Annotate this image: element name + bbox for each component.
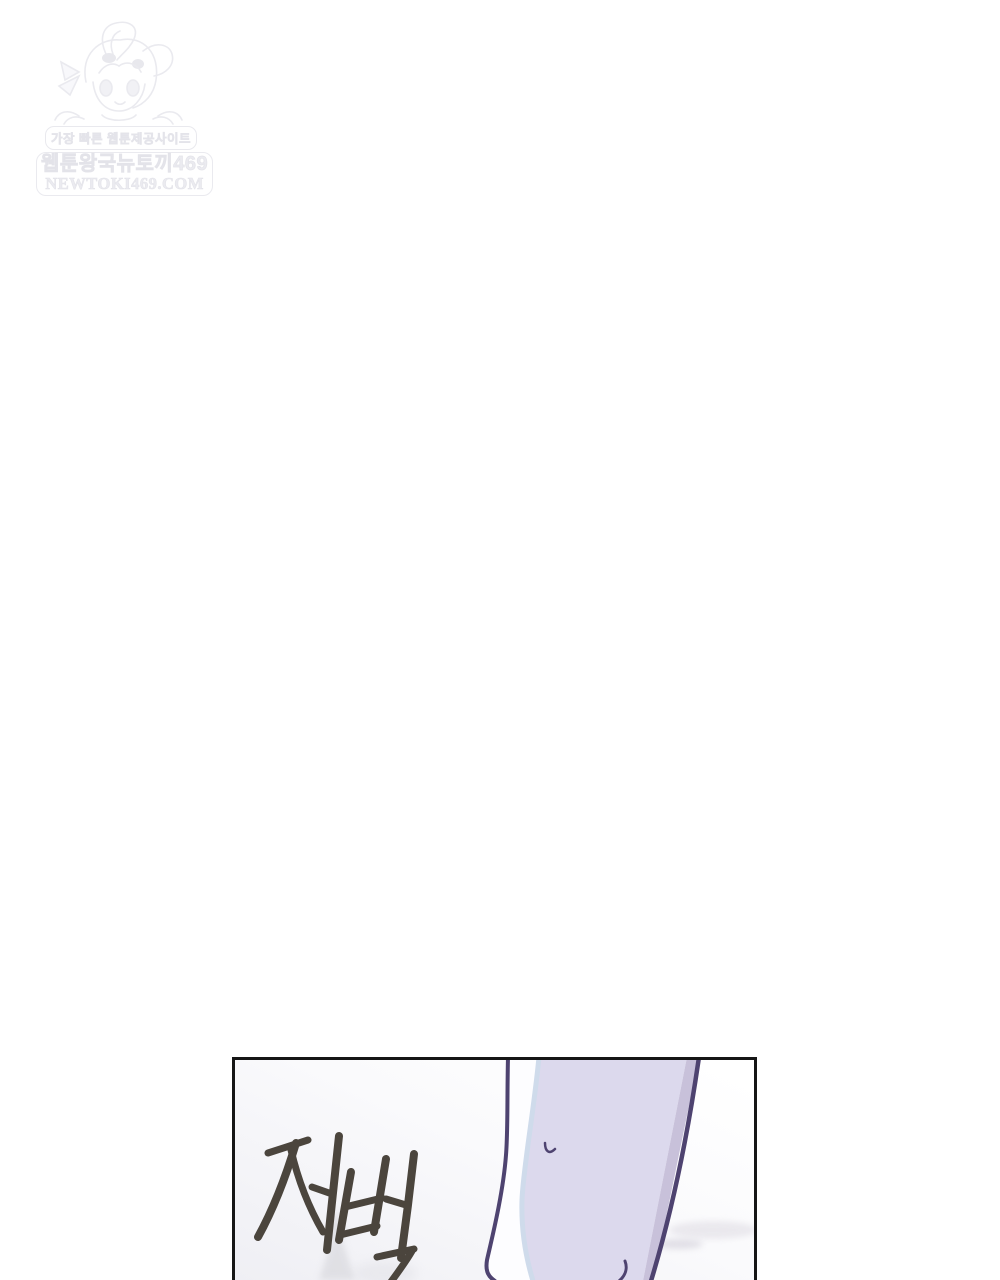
watermark-sitename-box: 웹툰왕국뉴토끼469 NEWTOKI469.COM	[36, 152, 213, 196]
watermark-domain: NEWTOKI469.COM	[41, 175, 208, 193]
webtoon-reader-page: 가장 빠른 웹툰제공사이트 웹툰왕국뉴토끼469 NEWTOKI469.COM …	[0, 0, 1000, 1280]
watermark-sitename-korean: 웹툰왕국뉴토끼469	[41, 154, 208, 175]
mascot-character-illustration	[46, 18, 196, 130]
panel-artwork	[235, 1060, 754, 1280]
site-watermark: 가장 빠른 웹툰제공사이트 웹툰왕국뉴토끼469 NEWTOKI469.COM	[36, 18, 206, 196]
comic-panel: 저벅	[232, 1057, 757, 1280]
watermark-tagline-box: 가장 빠른 웹툰제공사이트	[45, 126, 197, 150]
ground-shadow	[669, 1221, 754, 1239]
watermark-tagline: 가장 빠른 웹툰제공사이트	[51, 132, 191, 146]
